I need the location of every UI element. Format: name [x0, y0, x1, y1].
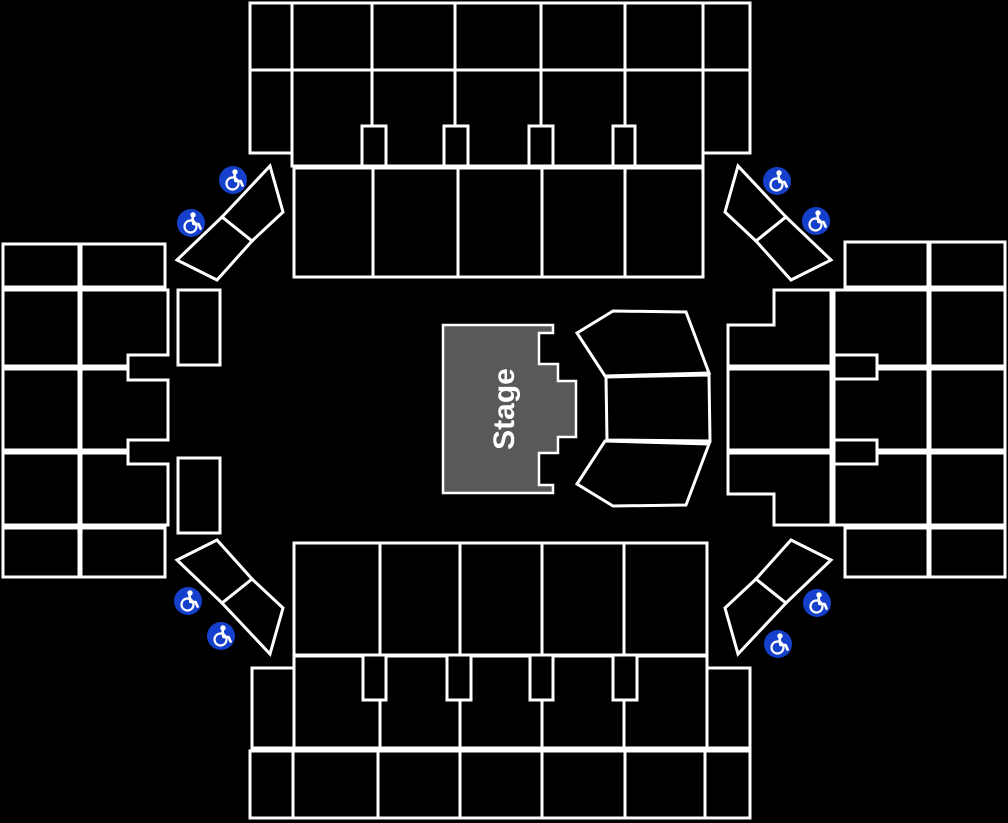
seat-section[interactable]	[250, 70, 292, 153]
wheelchair-icon[interactable]	[207, 622, 235, 650]
seat-section[interactable]	[81, 369, 168, 450]
seat-section[interactable]	[930, 242, 1005, 287]
vomitory-entrance	[362, 126, 386, 166]
right-grandstand	[728, 242, 1005, 577]
seat-section[interactable]	[292, 70, 372, 166]
seat-section[interactable]	[458, 168, 542, 277]
seat-section[interactable]	[252, 668, 294, 748]
seat-section[interactable]	[372, 3, 455, 70]
seat-section[interactable]	[703, 3, 750, 70]
seating-map: Stage	[0, 0, 1008, 823]
seat-section[interactable]	[930, 453, 1005, 525]
seat-section[interactable]	[707, 668, 750, 748]
wheelchair-icon[interactable]	[803, 589, 831, 617]
seat-section[interactable]	[460, 751, 542, 818]
wheelchair-icon[interactable]	[174, 587, 202, 615]
wheelchair-icon[interactable]	[219, 166, 247, 194]
left-grandstand	[3, 244, 220, 577]
seat-section[interactable]	[250, 751, 293, 818]
vomitory-entrance	[529, 126, 553, 166]
seat-section[interactable]	[3, 369, 79, 450]
vomitory-entrance	[447, 655, 471, 700]
seat-section[interactable]	[624, 543, 707, 655]
floor-sections	[577, 311, 710, 506]
vomitory-entrance	[444, 126, 468, 166]
seat-section[interactable]	[625, 3, 703, 70]
stage-label: Stage	[488, 368, 521, 450]
vomitory-entrance	[363, 655, 386, 700]
seating-map-canvas: Stage	[0, 0, 1008, 823]
seat-section[interactable]	[455, 3, 541, 70]
seat-section[interactable]	[541, 3, 625, 70]
seat-section[interactable]	[293, 751, 378, 818]
seat-section[interactable]	[380, 543, 460, 655]
seat-section[interactable]	[542, 543, 624, 655]
wheelchair-icon[interactable]	[802, 207, 830, 235]
vomitory-entrance	[530, 655, 553, 700]
seat-section[interactable]	[178, 458, 220, 533]
seat-section[interactable]	[728, 369, 831, 450]
seat-section[interactable]	[834, 369, 928, 450]
seat-section[interactable]	[3, 453, 79, 525]
stage: Stage	[443, 325, 576, 493]
seat-section[interactable]	[292, 3, 372, 70]
top-grandstand-lower-tier	[294, 168, 703, 277]
seat-section[interactable]	[703, 70, 750, 153]
vomitory-entrance	[613, 126, 635, 166]
seat-section[interactable]	[542, 751, 625, 818]
seat-section[interactable]	[3, 244, 79, 287]
seat-section[interactable]	[250, 3, 292, 70]
seat-section[interactable]	[625, 168, 703, 277]
seat-section[interactable]	[3, 528, 79, 577]
seat-section[interactable]	[542, 168, 625, 277]
seat-section[interactable]	[930, 290, 1005, 366]
wheelchair-icon[interactable]	[764, 630, 792, 658]
bottom-grandstand-lower-tier	[294, 543, 707, 655]
seat-section[interactable]	[178, 290, 220, 365]
vomitory-entrance	[613, 655, 637, 700]
seat-section[interactable]	[728, 290, 831, 366]
vomitory-entrance	[834, 440, 877, 464]
seat-section[interactable]	[81, 528, 165, 577]
seat-section[interactable]	[3, 290, 79, 366]
seat-section[interactable]	[577, 441, 709, 506]
seat-section[interactable]	[728, 453, 831, 525]
vomitory-entrance	[834, 355, 877, 379]
seat-section[interactable]	[378, 751, 460, 818]
seat-section[interactable]	[81, 290, 168, 366]
seat-section[interactable]	[294, 543, 380, 655]
seat-section[interactable]	[460, 543, 542, 655]
wheelchair-icon[interactable]	[763, 167, 791, 195]
seat-section[interactable]	[625, 70, 703, 166]
seat-section[interactable]	[845, 242, 928, 287]
bottom-grandstand-upper-tier	[250, 655, 750, 818]
seat-section[interactable]	[930, 528, 1005, 577]
seat-section[interactable]	[845, 528, 928, 577]
seat-section[interactable]	[577, 311, 709, 376]
seat-section[interactable]	[625, 751, 705, 818]
seat-section[interactable]	[930, 369, 1005, 450]
seat-section[interactable]	[373, 168, 458, 277]
seat-section[interactable]	[294, 168, 373, 277]
wheelchair-icon[interactable]	[177, 209, 205, 237]
seat-section[interactable]	[81, 244, 165, 287]
seat-section[interactable]	[705, 751, 750, 818]
seat-section[interactable]	[81, 453, 168, 525]
seat-section[interactable]	[606, 375, 710, 441]
top-grandstand-upper-tier	[250, 3, 750, 166]
